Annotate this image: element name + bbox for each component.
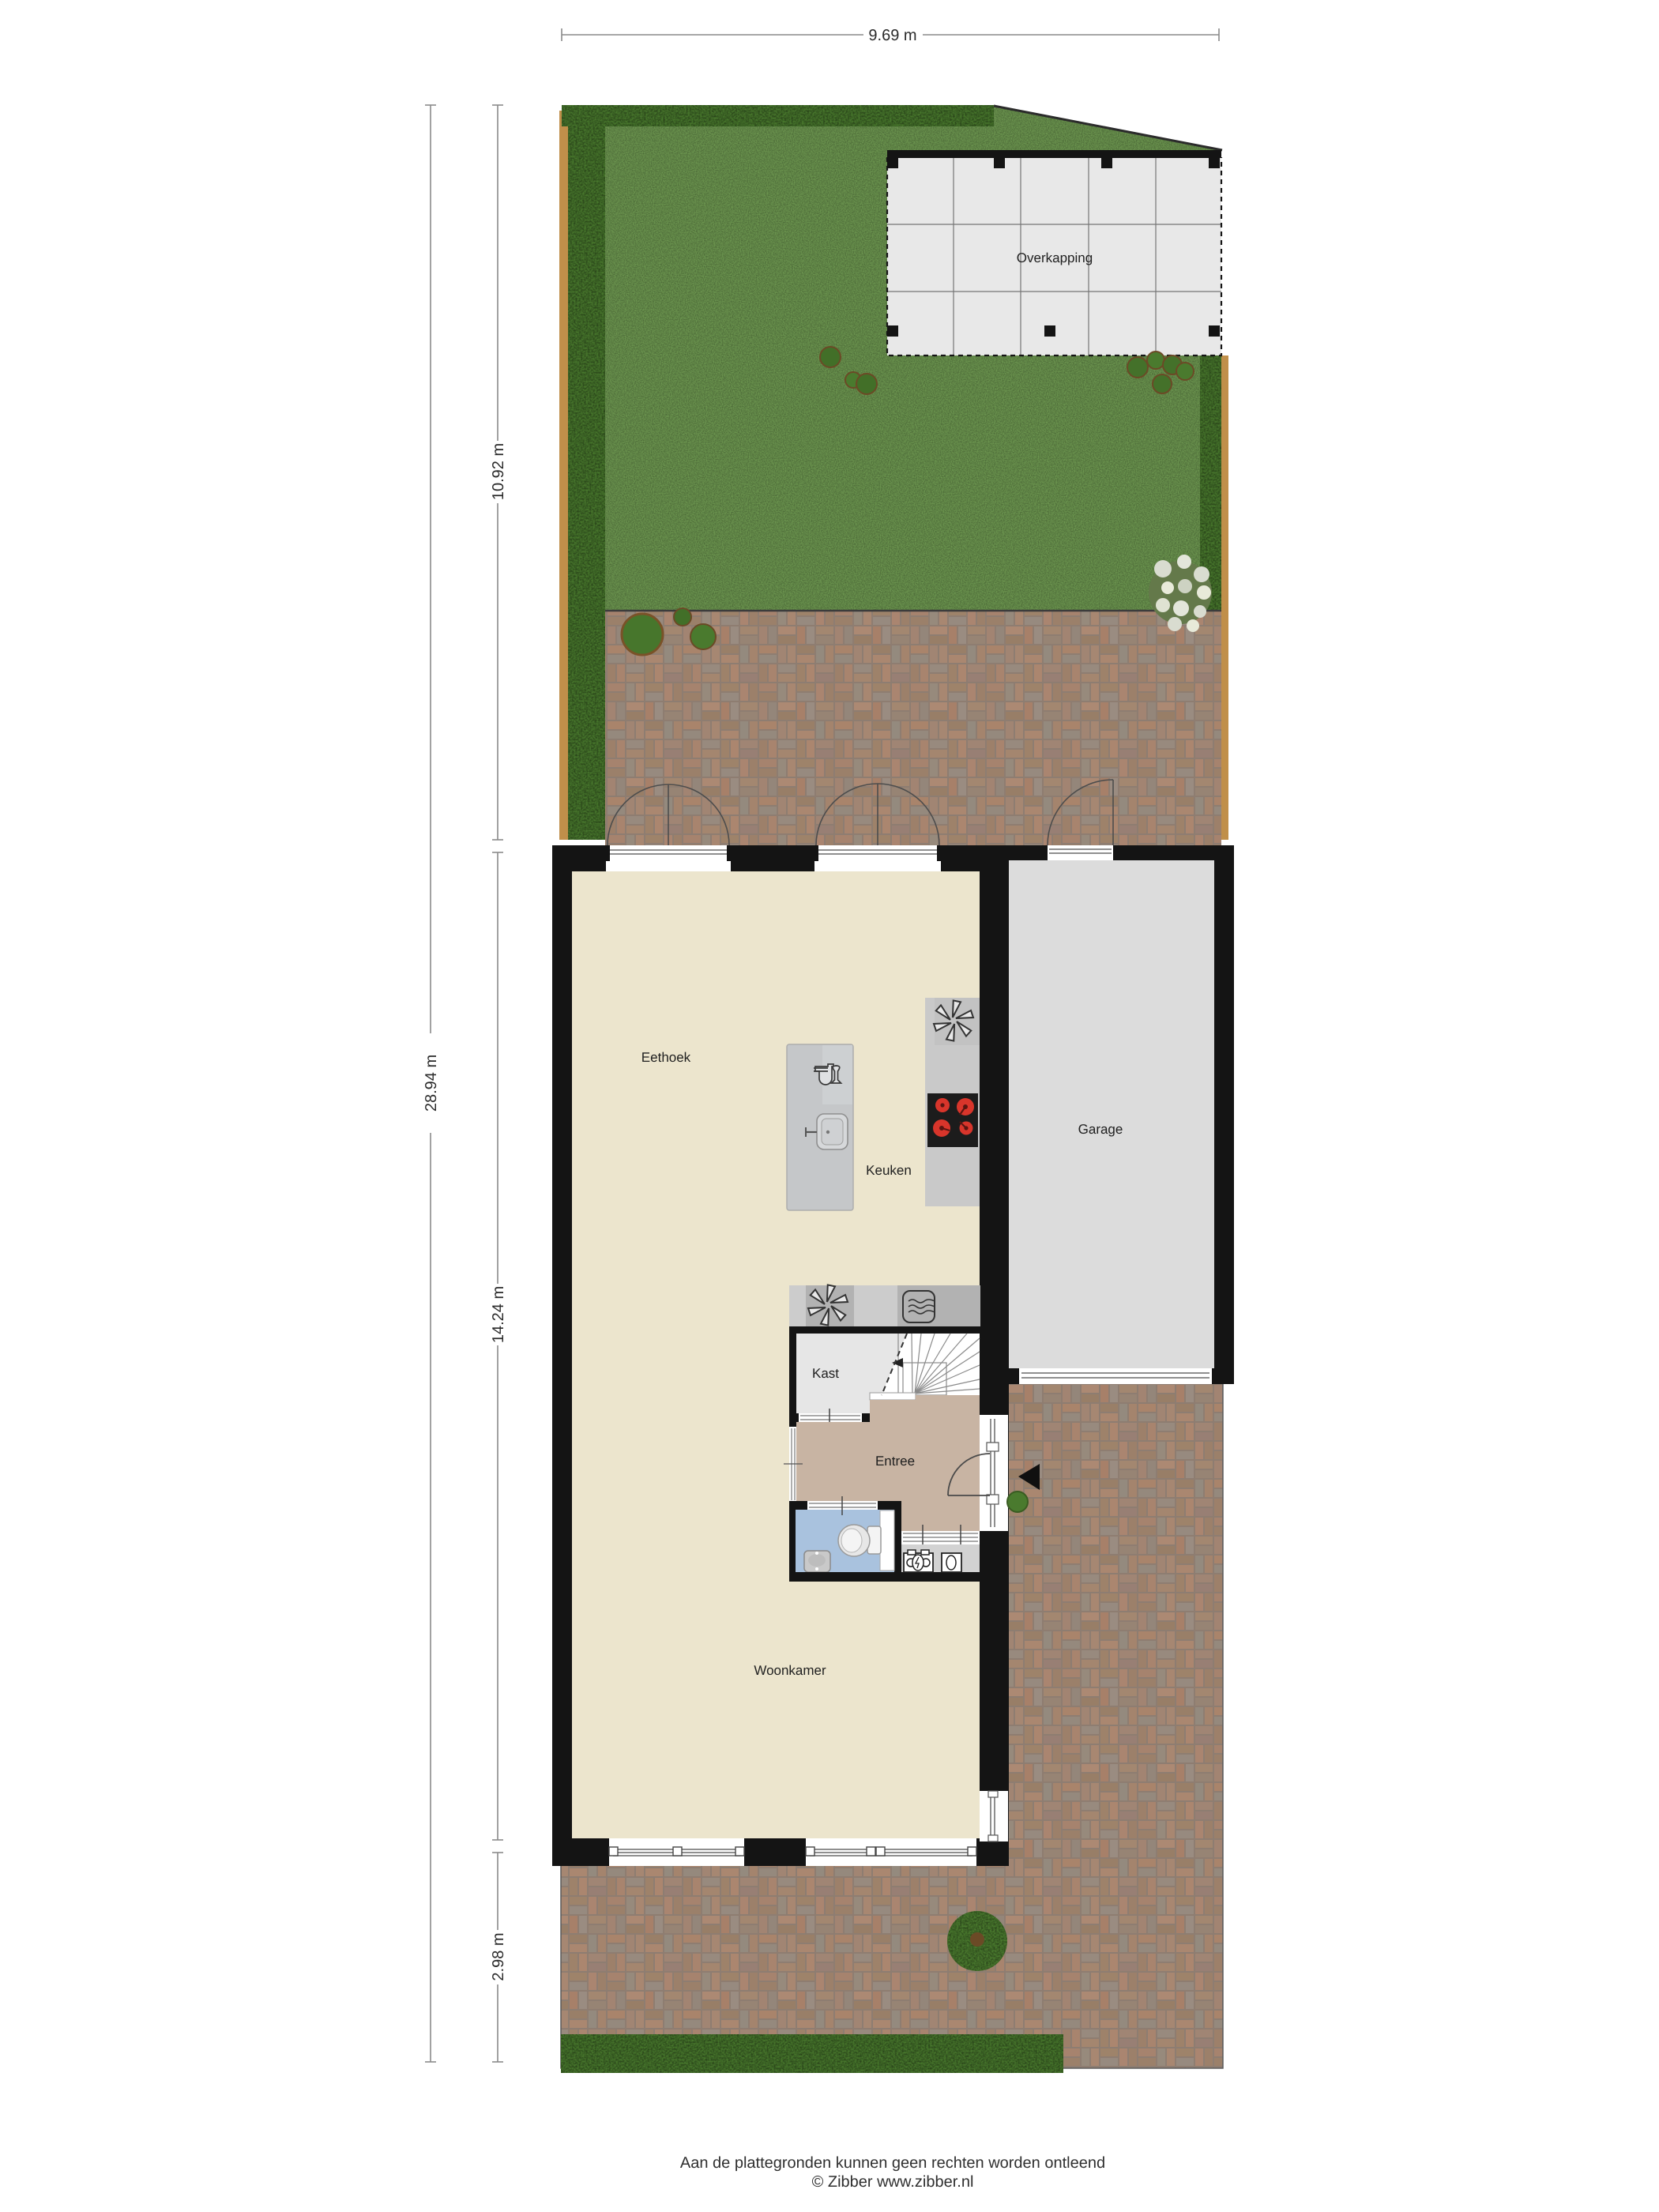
svg-text:Keuken: Keuken [866,1163,912,1178]
svg-text:Woonkamer: Woonkamer [754,1663,826,1678]
svg-text:28.94 m: 28.94 m [423,1055,440,1112]
svg-text:Garage: Garage [1078,1122,1123,1137]
svg-text:Kast: Kast [812,1366,839,1381]
svg-text:14.24 m: 14.24 m [490,1286,507,1343]
svg-text:Eethoek: Eethoek [641,1050,691,1065]
svg-text:Entree: Entree [875,1454,915,1469]
svg-text:Overkapping: Overkapping [1017,250,1093,265]
svg-text:9.69 m: 9.69 m [868,27,916,44]
svg-text:10.92 m: 10.92 m [490,443,507,500]
svg-text:Aan de plattegronden kunnen ge: Aan de plattegronden kunnen geen rechten… [680,2154,1105,2172]
svg-text:© Zibber www.zibber.nl: © Zibber www.zibber.nl [812,2173,974,2191]
svg-text:2.98 m: 2.98 m [490,1932,507,1981]
